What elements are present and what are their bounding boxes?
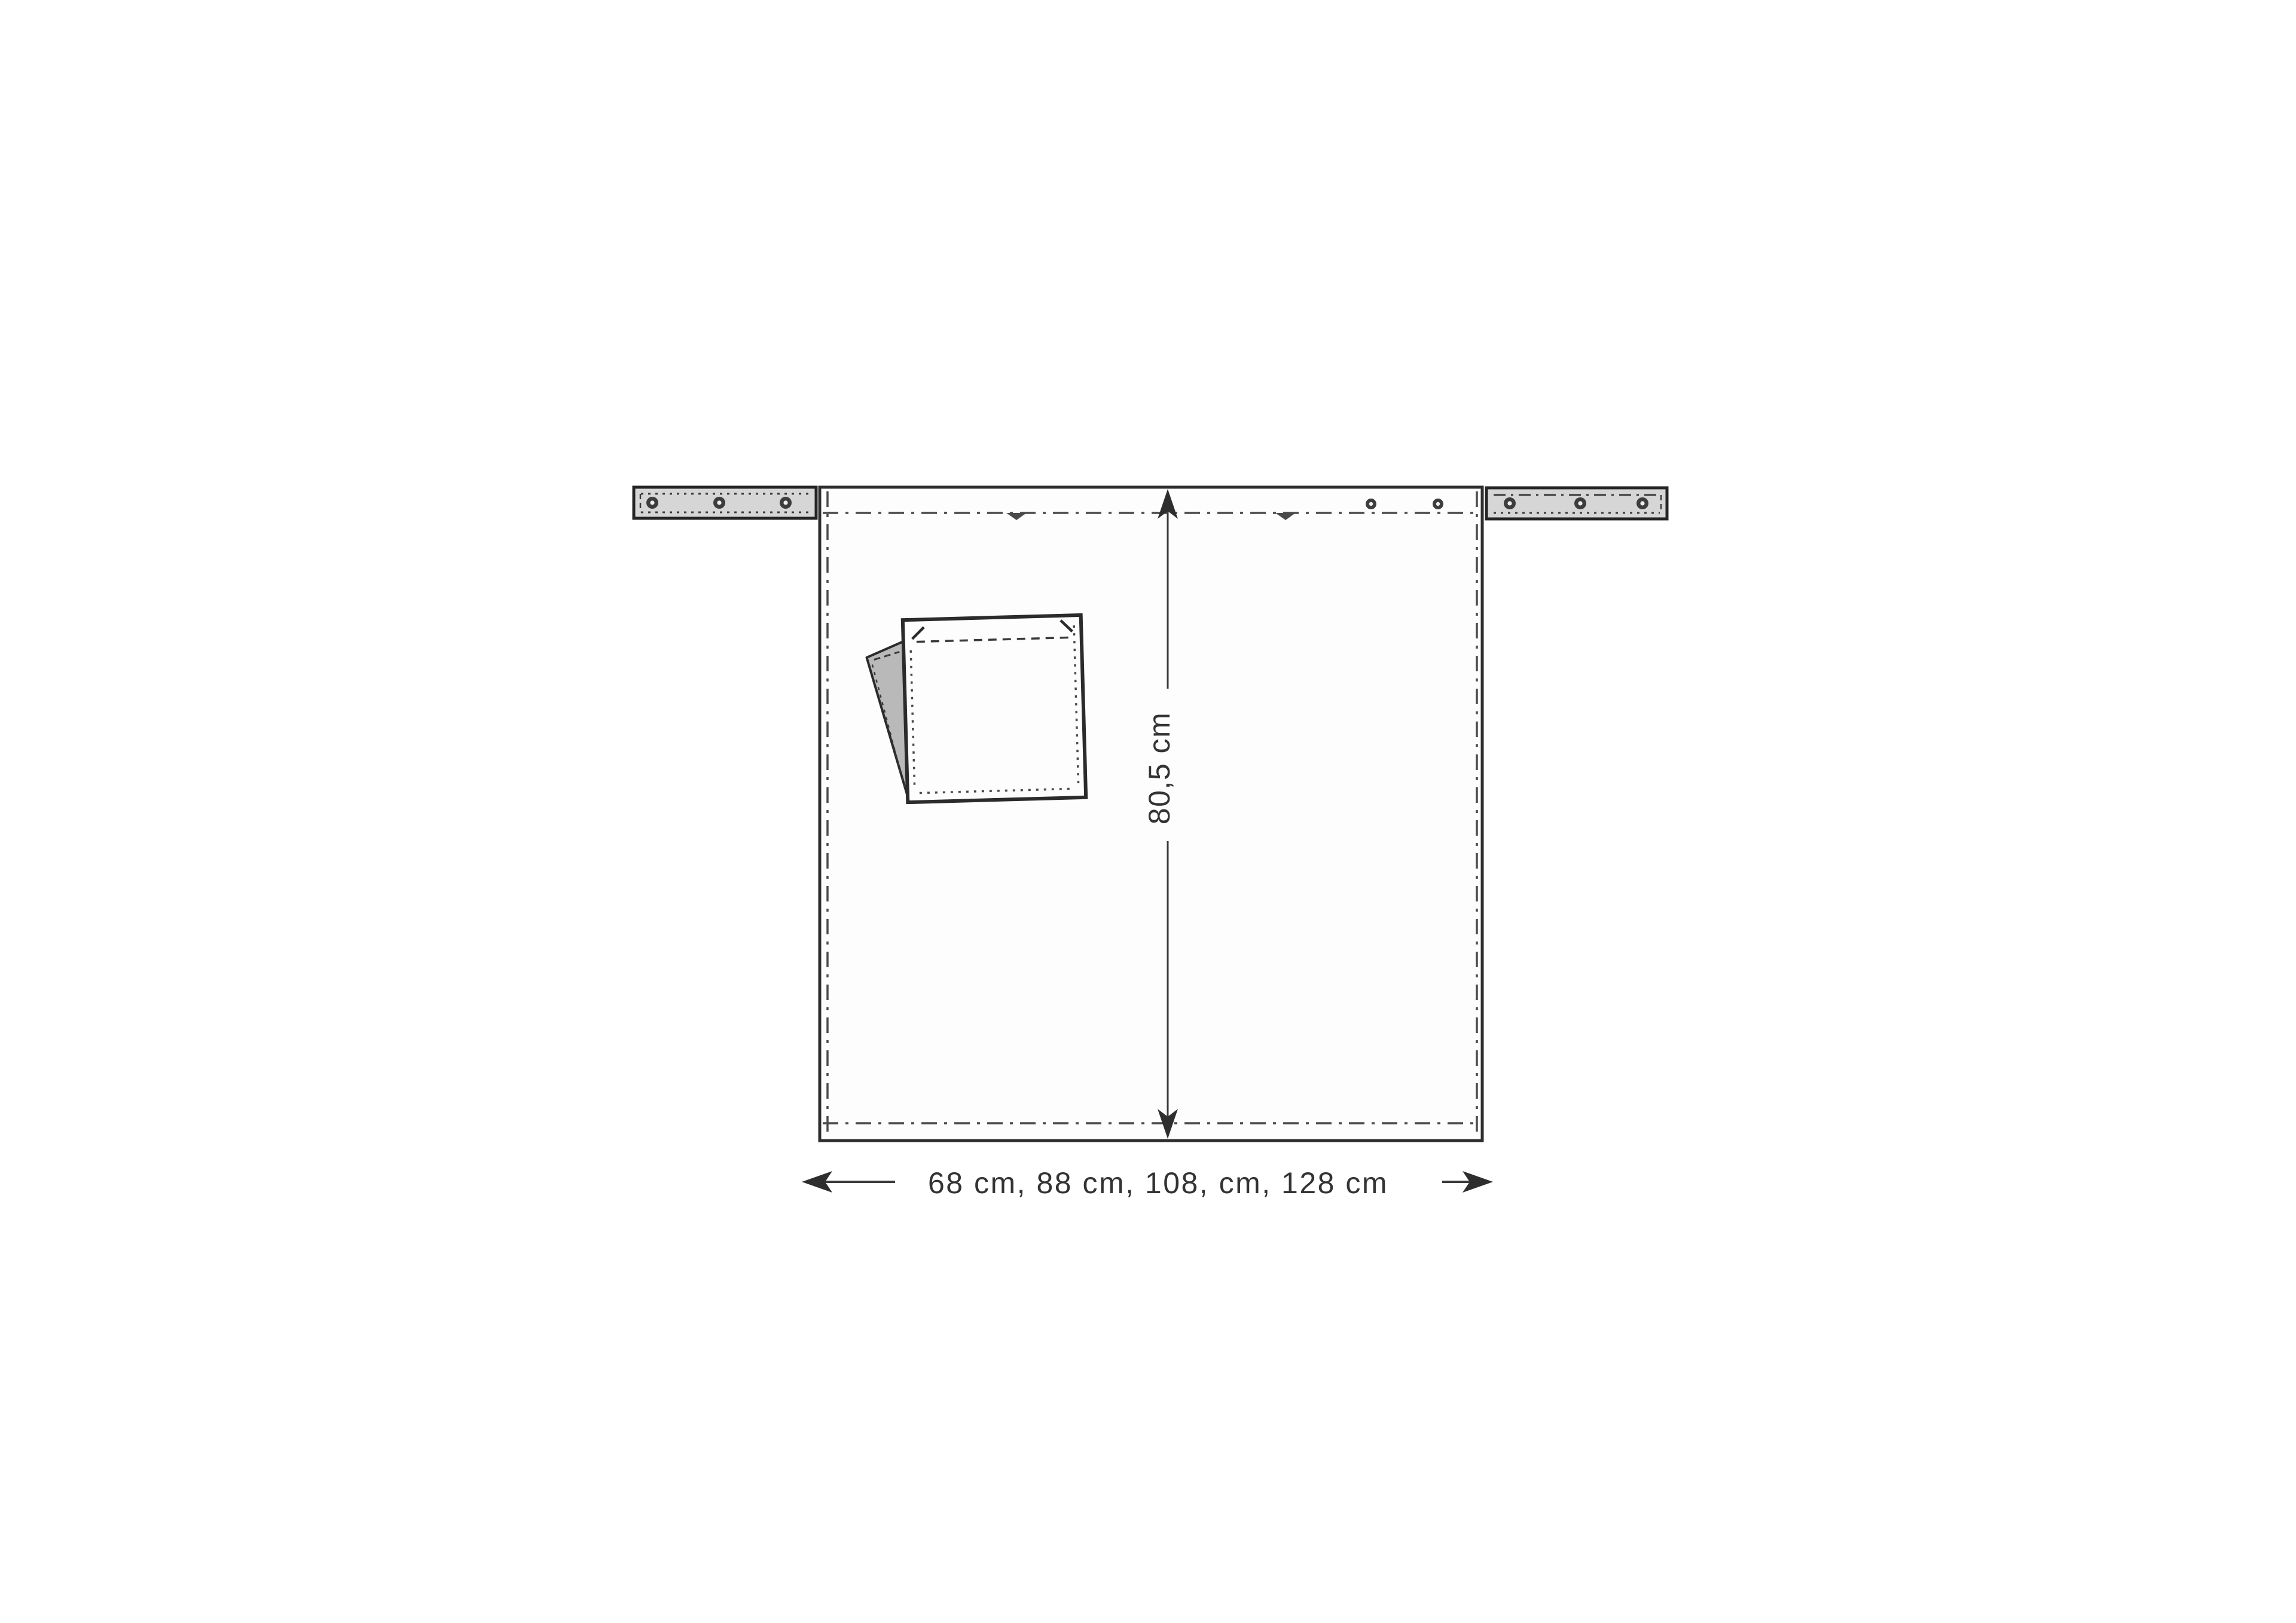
tie-grommet: [646, 497, 658, 509]
apron-diagram: 80,5 cm 68 cm, 88 cm, 108, cm, 128 cm: [0, 0, 2296, 1623]
pocket-front: [903, 615, 1086, 802]
apron-grommet: [1366, 499, 1376, 509]
right-waist-tie: [1486, 488, 1667, 519]
left-waist-tie: [634, 487, 816, 518]
height-dimension-label: 80,5 cm: [1143, 712, 1176, 824]
tie-grommet: [1636, 497, 1648, 509]
tie-grommet: [780, 497, 792, 509]
tie-grommet: [1574, 497, 1586, 509]
apron-diagram-canvas: 80,5 cm 68 cm, 88 cm, 108, cm, 128 cm: [0, 0, 2296, 1623]
width-dimension-label: 68 cm, 88 cm, 108, cm, 128 cm: [928, 1166, 1388, 1200]
tie-grommet: [713, 497, 725, 509]
apron-grommet: [1433, 499, 1443, 509]
tie-grommet: [1504, 497, 1516, 509]
